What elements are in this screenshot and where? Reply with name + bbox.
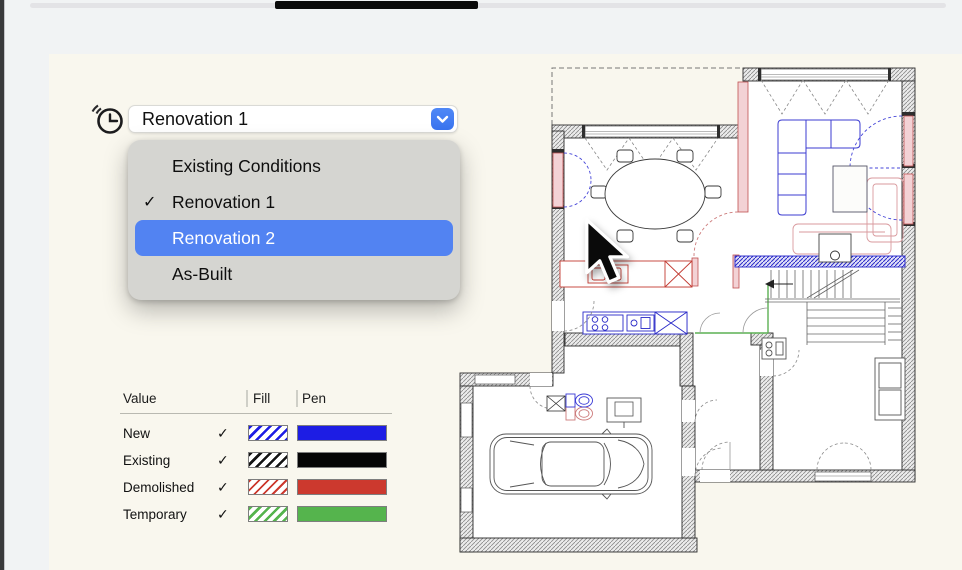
menu-item-existing-conditions[interactable]: Existing Conditions [135, 148, 453, 184]
pen-swatch-demolished[interactable] [297, 479, 387, 495]
legend-row-temporary: Temporary ✓ [120, 502, 392, 529]
menu-item-renovation-2[interactable]: Renovation 2 [135, 220, 453, 256]
renovation-select-value: Renovation 1 [129, 109, 431, 130]
pen-swatch-temporary[interactable] [297, 506, 387, 522]
checkmark-icon[interactable]: ✓ [217, 506, 229, 523]
menu-item-renovation-1[interactable]: ✓ Renovation 1 [135, 184, 453, 220]
menu-item-label: Renovation 2 [172, 228, 275, 249]
fill-swatch-new[interactable] [248, 425, 288, 441]
renovation-select[interactable]: Renovation 1 [128, 105, 458, 133]
legend-row-label: Existing [123, 453, 170, 468]
demolished-toilet [566, 407, 593, 420]
legend-row-label: Demolished [123, 480, 194, 495]
top-scroll-track [30, 3, 946, 8]
legend-row-new: New ✓ [120, 421, 392, 448]
chevron-down-icon [436, 115, 449, 124]
screen-edge-strip [0, 0, 4, 570]
menu-item-label: Existing Conditions [172, 156, 321, 177]
demolition-outline [552, 68, 743, 125]
legend-row-existing: Existing ✓ [120, 448, 392, 475]
renovation-legend: Value Fill Pen New ✓ Existing ✓ Demolish… [120, 389, 392, 529]
checkmark-icon[interactable]: ✓ [217, 479, 229, 496]
new-kitchen-counter [583, 312, 687, 334]
pen-swatch-existing[interactable] [297, 452, 387, 468]
legend-col-fill: Fill [253, 391, 270, 406]
clock-history-icon [88, 101, 126, 139]
legend-row-demolished: Demolished ✓ [120, 475, 392, 502]
legend-header: Value Fill Pen [120, 389, 392, 414]
new-toilet [566, 394, 593, 407]
checkmark-icon[interactable]: ✓ [217, 425, 229, 442]
checkmark-icon[interactable]: ✓ [217, 452, 229, 469]
legend-row-label: Temporary [123, 507, 187, 522]
column-separator [296, 390, 298, 407]
floor-plan[interactable] [455, 58, 920, 555]
renovation-menu: Existing Conditions ✓ Renovation 1 Renov… [128, 140, 460, 300]
fill-swatch-existing[interactable] [248, 452, 288, 468]
menu-item-label: Renovation 1 [172, 192, 275, 213]
legend-row-label: New [123, 426, 150, 441]
fill-swatch-demolished[interactable] [248, 479, 288, 495]
checkmark-icon: ✓ [143, 192, 156, 212]
menu-item-label: As-Built [172, 264, 232, 285]
top-scroll-thumb[interactable] [275, 1, 478, 9]
legend-col-value: Value [123, 391, 157, 406]
menu-item-as-built[interactable]: As-Built [135, 256, 453, 292]
select-dropdown-button[interactable] [431, 108, 454, 130]
pen-swatch-new[interactable] [297, 425, 387, 441]
fill-swatch-temporary[interactable] [248, 506, 288, 522]
column-separator [246, 390, 248, 407]
legend-col-pen: Pen [302, 391, 326, 406]
mouse-cursor [583, 218, 641, 290]
